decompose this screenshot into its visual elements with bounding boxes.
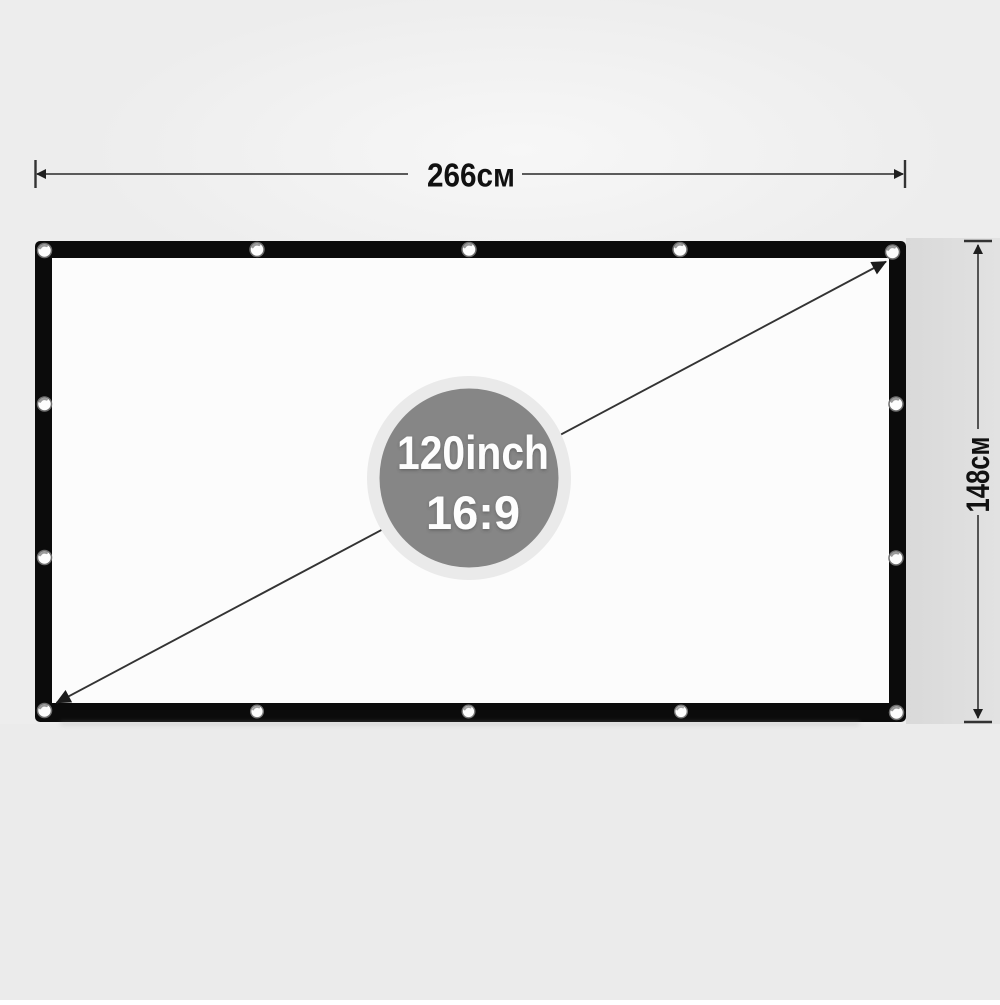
svg-text:16:9: 16:9 — [426, 486, 520, 539]
svg-text:120inch: 120inch — [397, 426, 549, 479]
svg-text:148см: 148см — [960, 437, 996, 513]
svg-text:266см: 266см — [427, 157, 515, 194]
